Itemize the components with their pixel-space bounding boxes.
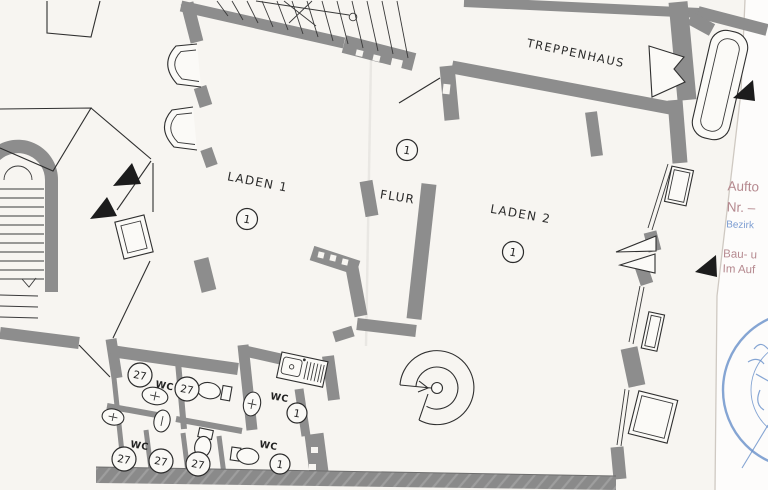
margin-note: Bezirk	[726, 219, 755, 231]
margin-note: Bau- u	[723, 248, 757, 261]
unit-number: 27	[116, 453, 131, 467]
margin-note: Nr. –	[727, 199, 757, 215]
margin-note: Im Auf	[722, 263, 756, 276]
floor-plan-drawing: TREPPENHAUS LADEN 1 1 FLUR 1 LADEN 2 1 W…	[0, 0, 768, 490]
unit-number: 27	[179, 383, 194, 397]
unit-number: 27	[153, 455, 168, 469]
unit-number: 27	[132, 369, 147, 383]
unit-number: 27	[190, 458, 205, 472]
scanned-floor-plan-page: TREPPENHAUS LADEN 1 1 FLUR 1 LADEN 2 1 W…	[0, 0, 768, 490]
margin-note: Aufto	[727, 178, 759, 194]
